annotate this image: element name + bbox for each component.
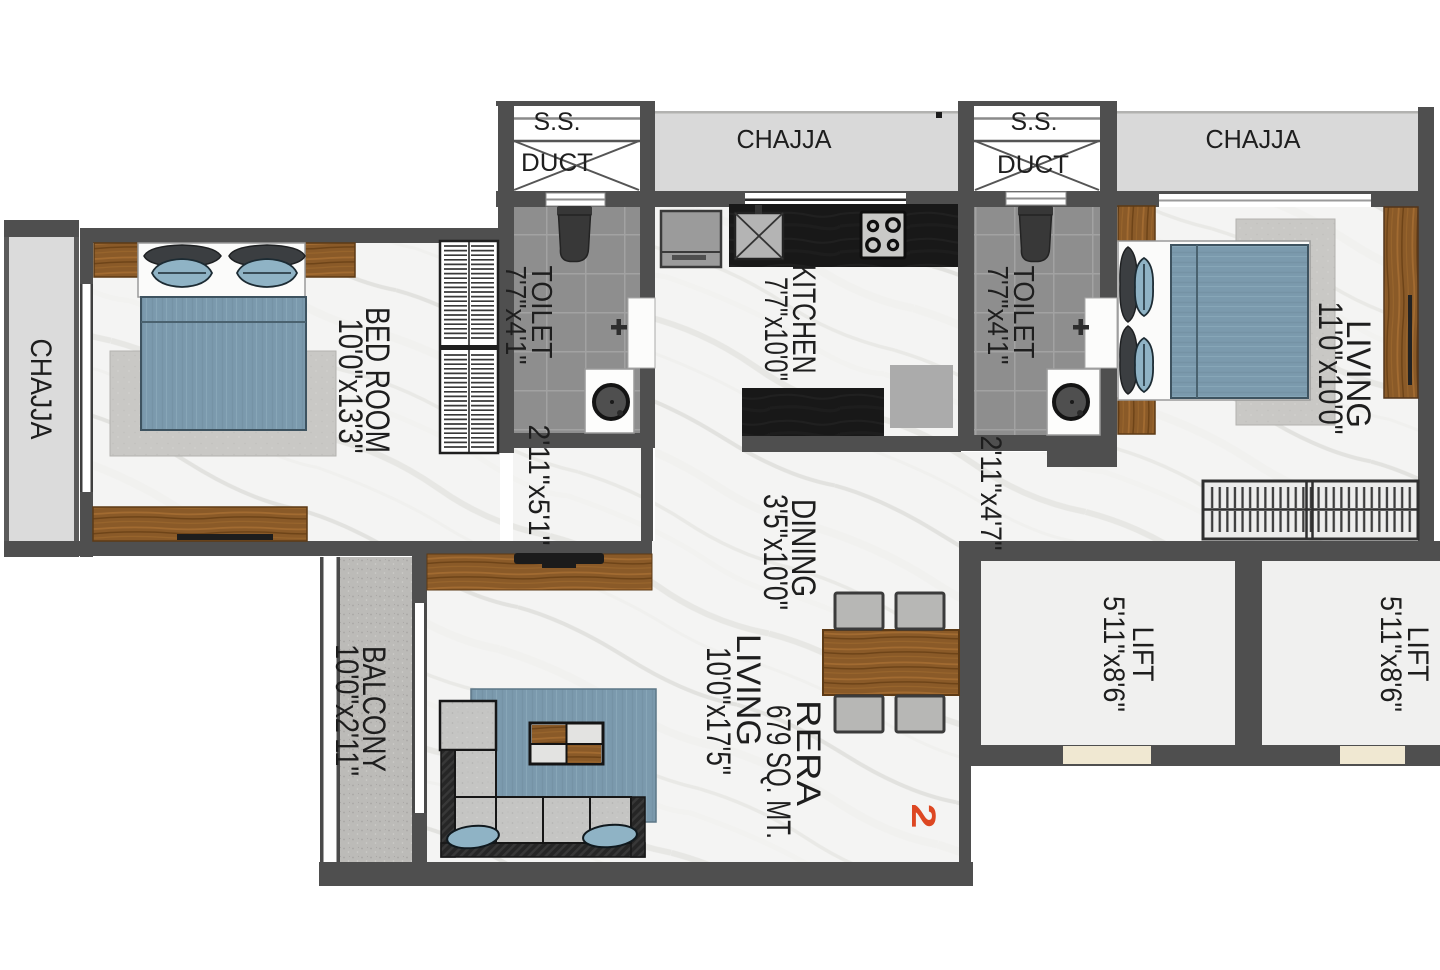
svg-text:2'11"x4'7": 2'11"x4'7": [974, 436, 1007, 551]
svg-text:S.S.: S.S.: [534, 108, 581, 136]
svg-text:10'0"x2'11": 10'0"x2'11": [329, 644, 365, 776]
svg-text:3'5"x10'0": 3'5"x10'0": [756, 494, 794, 610]
svg-text:5'11"x8'6": 5'11"x8'6": [1374, 596, 1407, 712]
svg-text:CHAJJA: CHAJJA: [24, 339, 57, 440]
svg-text:2: 2: [904, 804, 942, 829]
svg-text:10'0"x13'3": 10'0"x13'3": [331, 319, 369, 454]
svg-text:CHAJJA: CHAJJA: [1206, 124, 1302, 154]
svg-text:CHAJJA: CHAJJA: [737, 124, 833, 154]
svg-text:11'0"x10'0": 11'0"x10'0": [1311, 302, 1349, 435]
svg-text:2'11"x5'1": 2'11"x5'1": [522, 425, 555, 546]
svg-text:7'7"x4'1": 7'7"x4'1": [499, 266, 531, 365]
svg-text:10'0"x17'5": 10'0"x17'5": [699, 647, 737, 775]
svg-text:DUCT: DUCT: [521, 149, 593, 177]
svg-text:5'11"x8'6": 5'11"x8'6": [1097, 596, 1130, 712]
svg-text:S.S.: S.S.: [1011, 108, 1058, 136]
svg-text:679 SQ. MT.: 679 SQ. MT.: [759, 705, 797, 839]
svg-text:7'7"x10'0": 7'7"x10'0": [758, 277, 794, 381]
svg-text:DUCT: DUCT: [997, 151, 1069, 179]
svg-text:7'7"x4'1": 7'7"x4'1": [981, 266, 1013, 365]
